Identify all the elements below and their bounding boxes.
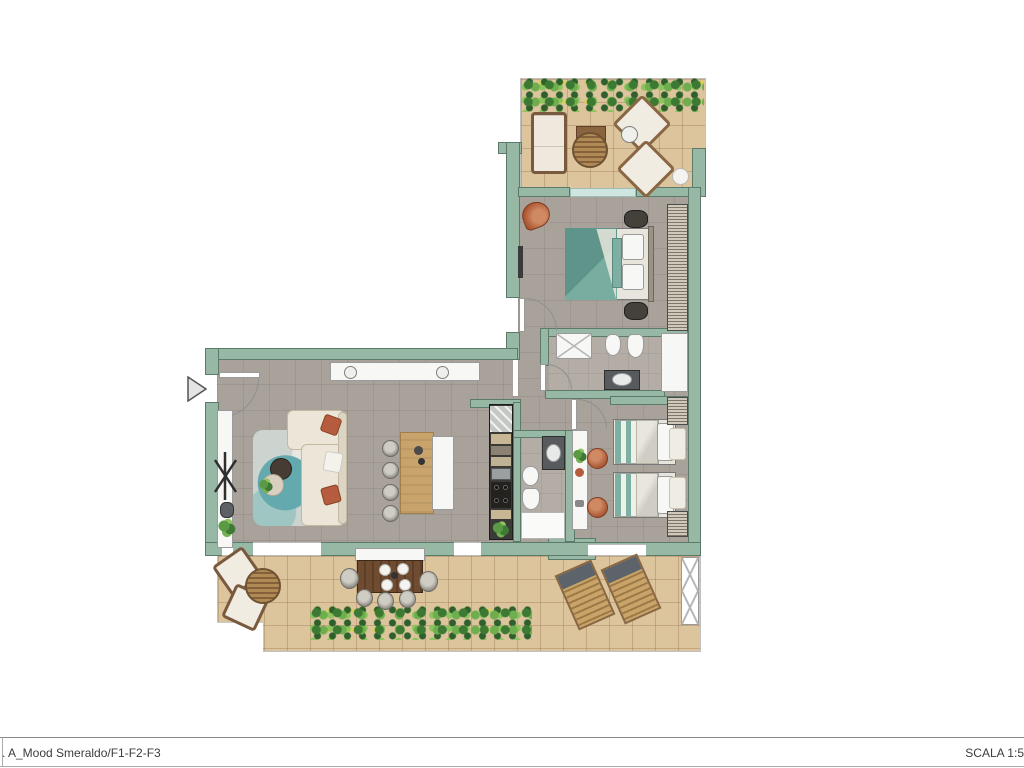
nightstand-top	[624, 210, 648, 228]
terrace-decor-sphere	[672, 168, 689, 185]
wardrobe	[667, 204, 688, 331]
lower-terrace-hedge	[310, 606, 532, 640]
window-gap-3	[454, 542, 481, 556]
wall-kitchen-divider	[513, 402, 521, 542]
wall-bathroom1-left	[540, 328, 549, 366]
bathroom1-closet	[661, 333, 688, 392]
kitchen-drawer-2	[491, 446, 511, 455]
bidet-2	[522, 466, 539, 486]
drawing-title: . A_Mood Smeraldo/F1-F2-F3	[2, 746, 161, 760]
twin-bed-2-blanket	[636, 473, 658, 517]
dining-table	[400, 432, 434, 514]
vase	[220, 502, 234, 518]
twin-desk	[572, 430, 588, 530]
coat-stand-icon	[214, 452, 237, 500]
bidet-1	[605, 334, 621, 356]
desk-plant	[572, 448, 588, 464]
double-bed-pillow-2	[622, 264, 644, 290]
kitchen-drawer-1	[491, 434, 511, 444]
window-gap-2	[253, 542, 321, 556]
table-decor-1	[414, 446, 423, 455]
headboard-cushion-2	[669, 477, 686, 509]
outdoor-chair-right	[419, 571, 438, 592]
outdoor-chair-bottom-3	[399, 590, 416, 608]
plate-2	[397, 563, 409, 575]
wall-living-top	[205, 348, 518, 360]
outdoor-chair-bottom-1	[356, 589, 373, 607]
sideboard-bowl-1	[344, 366, 357, 379]
shower-2	[521, 512, 565, 539]
living-plant	[217, 518, 237, 538]
vanity-2-basin	[546, 444, 561, 462]
terrace-small-table	[621, 126, 638, 143]
dining-chair-4	[382, 505, 399, 522]
radiator	[518, 246, 523, 278]
toilet-1	[627, 334, 644, 358]
hob-burner-2	[503, 485, 508, 490]
bedroom-terrace-glass-door	[570, 188, 636, 197]
sofa-pillow-white	[322, 451, 343, 474]
kitchen-drawer-3	[491, 457, 511, 466]
entrance-arrow-icon	[187, 376, 207, 402]
wall-right	[688, 187, 701, 556]
dining-chair-3	[382, 484, 399, 501]
footer-bottom-line	[0, 766, 1024, 767]
vanity-1-basin	[612, 373, 632, 386]
pouf-2	[587, 497, 608, 518]
wall-bedroom-top-left	[518, 187, 570, 197]
upper-terrace-hedge	[522, 78, 704, 112]
hob-burner-1	[494, 485, 499, 490]
shower-1-cross-icon	[556, 333, 592, 359]
headboard-cushion-1	[669, 428, 686, 460]
kitchen-drawer-4	[491, 510, 511, 519]
footer-divider-line	[0, 737, 1024, 738]
trellis-x-icon	[681, 557, 699, 625]
dining-bench	[432, 436, 454, 510]
twin-bed-1-blanket	[636, 420, 658, 464]
plate-3	[381, 579, 393, 591]
pouf-1	[587, 448, 608, 469]
outdoor-chair-bottom-2	[377, 592, 394, 610]
hob-burner-3	[494, 498, 499, 503]
terrace-rattan-table-2	[245, 568, 281, 604]
hob-burner-4	[503, 498, 508, 503]
kitchen-glass-cabinet	[490, 406, 512, 432]
double-bed-headboard	[648, 226, 654, 302]
floor-plan-sheet: . A_Mood Smeraldo/F1-F2-F3 SCALA 1:5	[0, 0, 1024, 768]
sideboard-bowl-2	[436, 366, 449, 379]
dining-chair-2	[382, 462, 399, 479]
double-bed-teal-pillow	[612, 238, 622, 288]
table-decor-2	[418, 458, 425, 465]
desk-pot	[575, 468, 584, 477]
desk-item	[575, 500, 584, 507]
twin-nightstand-bottom	[667, 511, 688, 537]
twin-nightstand-top	[667, 397, 688, 425]
table-centerpiece	[391, 572, 398, 579]
scale-label: SCALA 1:5	[965, 746, 1024, 760]
plate-1	[379, 564, 391, 576]
terrace-rattan-table	[572, 132, 608, 168]
terrace-sofa	[531, 112, 567, 174]
dining-chair-1	[382, 440, 399, 457]
double-bed-pillow-1	[622, 234, 644, 260]
kitchen-plant	[491, 521, 511, 538]
toilet-2	[522, 488, 540, 510]
wall-left-a	[205, 348, 219, 375]
nightstand-bottom	[624, 302, 648, 320]
outdoor-chair-left	[340, 568, 359, 589]
kitchen-sink	[491, 468, 511, 480]
coffee-table-plant	[258, 478, 274, 494]
